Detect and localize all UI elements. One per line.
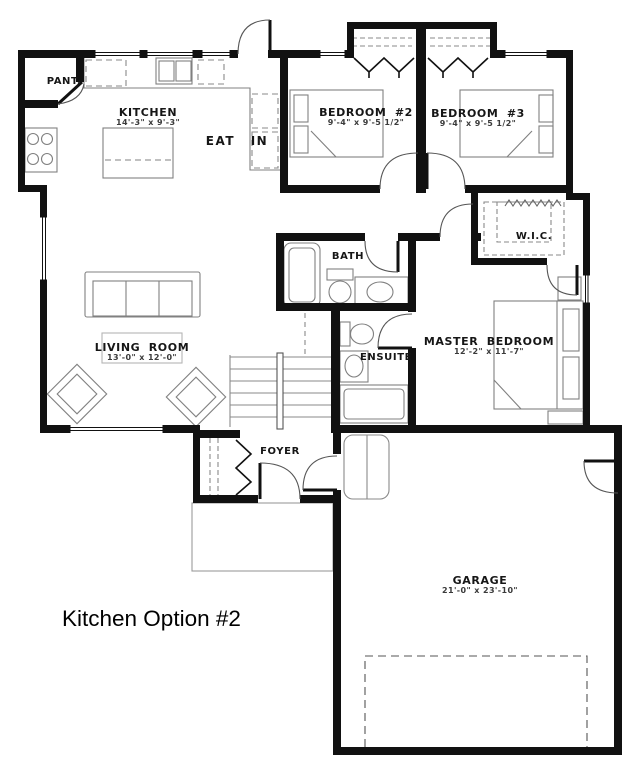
plan-option-title: Kitchen Option #2 bbox=[62, 606, 241, 632]
dresser bbox=[548, 411, 583, 424]
garage-landing bbox=[344, 435, 389, 499]
room-label-kitchen: KITCHEN 14'-3" x 9'-3" bbox=[116, 107, 180, 127]
ensuite-shower bbox=[340, 385, 408, 423]
room-label-living-room: LIVING ROOM 13'-0" x 12'-0" bbox=[95, 342, 190, 362]
porch bbox=[192, 503, 333, 571]
kitchen-sink bbox=[156, 58, 192, 84]
sofa bbox=[85, 272, 200, 317]
fixtures bbox=[25, 38, 587, 747]
room-label-master-bedroom: MASTER BEDROOM 12'-2" x 11'-7" bbox=[424, 336, 554, 356]
room-label-bath: BATH bbox=[332, 252, 364, 262]
bath-toilet bbox=[327, 269, 353, 303]
wic-shelving bbox=[484, 202, 564, 255]
kitchen-island bbox=[103, 128, 173, 178]
room-label-bedroom-2: BEDROOM #2 9'-4" x 9'-5 1/2" bbox=[319, 107, 413, 127]
wic-sawtooth bbox=[505, 200, 561, 206]
room-label-ensuite: ENSUITE bbox=[360, 353, 412, 363]
armchair-right bbox=[166, 367, 225, 426]
room-label-garage: GARAGE 21'-0" x 23'-10" bbox=[442, 575, 518, 595]
garage-door-dashed bbox=[365, 656, 587, 747]
room-label-wic: W.I.C. bbox=[516, 232, 552, 242]
stove bbox=[25, 128, 57, 172]
armchair-left bbox=[47, 364, 106, 423]
upper-cabinets bbox=[86, 60, 278, 168]
room-label-eat-in: EAT IN bbox=[206, 135, 268, 147]
ensuite-toilet bbox=[340, 322, 374, 346]
room-label-bedroom-3: BEDROOM #3 9'-4" x 9'-5 1/2" bbox=[431, 108, 525, 128]
room-label-pantry: PANT. bbox=[47, 77, 82, 87]
kitchen-counter bbox=[84, 58, 280, 170]
stairs bbox=[230, 313, 331, 429]
floor-plan: PANT. KITCHEN 14'-3" x 9'-3" EAT IN BEDR… bbox=[0, 0, 639, 768]
bathtub bbox=[284, 243, 320, 307]
room-label-foyer: FOYER bbox=[260, 447, 300, 457]
